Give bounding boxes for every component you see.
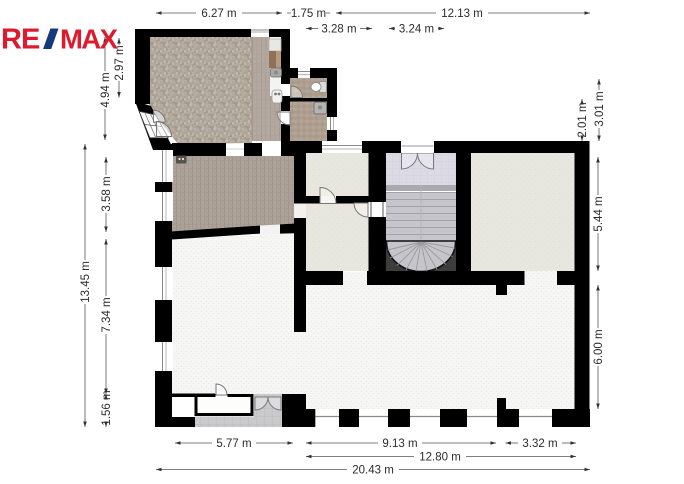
svg-text:3.28 m: 3.28 m	[321, 24, 356, 36]
svg-text:7.34 m: 7.34 m	[101, 297, 113, 332]
svg-text:3.01 m: 3.01 m	[594, 91, 606, 126]
svg-text:RE: RE	[1, 24, 40, 56]
svg-text:13.45 m: 13.45 m	[80, 261, 92, 303]
svg-text:4.94 m: 4.94 m	[100, 72, 112, 107]
svg-text:6.27 m: 6.27 m	[201, 8, 236, 20]
svg-text:3.32 m: 3.32 m	[522, 438, 557, 450]
svg-text:5.44 m: 5.44 m	[593, 196, 605, 231]
svg-text:12.80 m: 12.80 m	[419, 452, 461, 464]
svg-text:6.00 m: 6.00 m	[593, 329, 605, 364]
svg-text:2.01 m: 2.01 m	[577, 102, 589, 137]
svg-text:3.58 m: 3.58 m	[101, 176, 113, 211]
svg-text:12.13 m: 12.13 m	[441, 8, 483, 20]
svg-text:MAX: MAX	[60, 24, 119, 55]
svg-text:1.56 m: 1.56 m	[101, 390, 113, 425]
svg-text:1.75 m: 1.75 m	[291, 8, 326, 20]
svg-text:9.13 m: 9.13 m	[382, 438, 417, 450]
svg-text:3.24 m: 3.24 m	[399, 24, 434, 36]
svg-text:5.77 m: 5.77 m	[216, 438, 251, 450]
svg-text:20.43 m: 20.43 m	[352, 465, 394, 477]
